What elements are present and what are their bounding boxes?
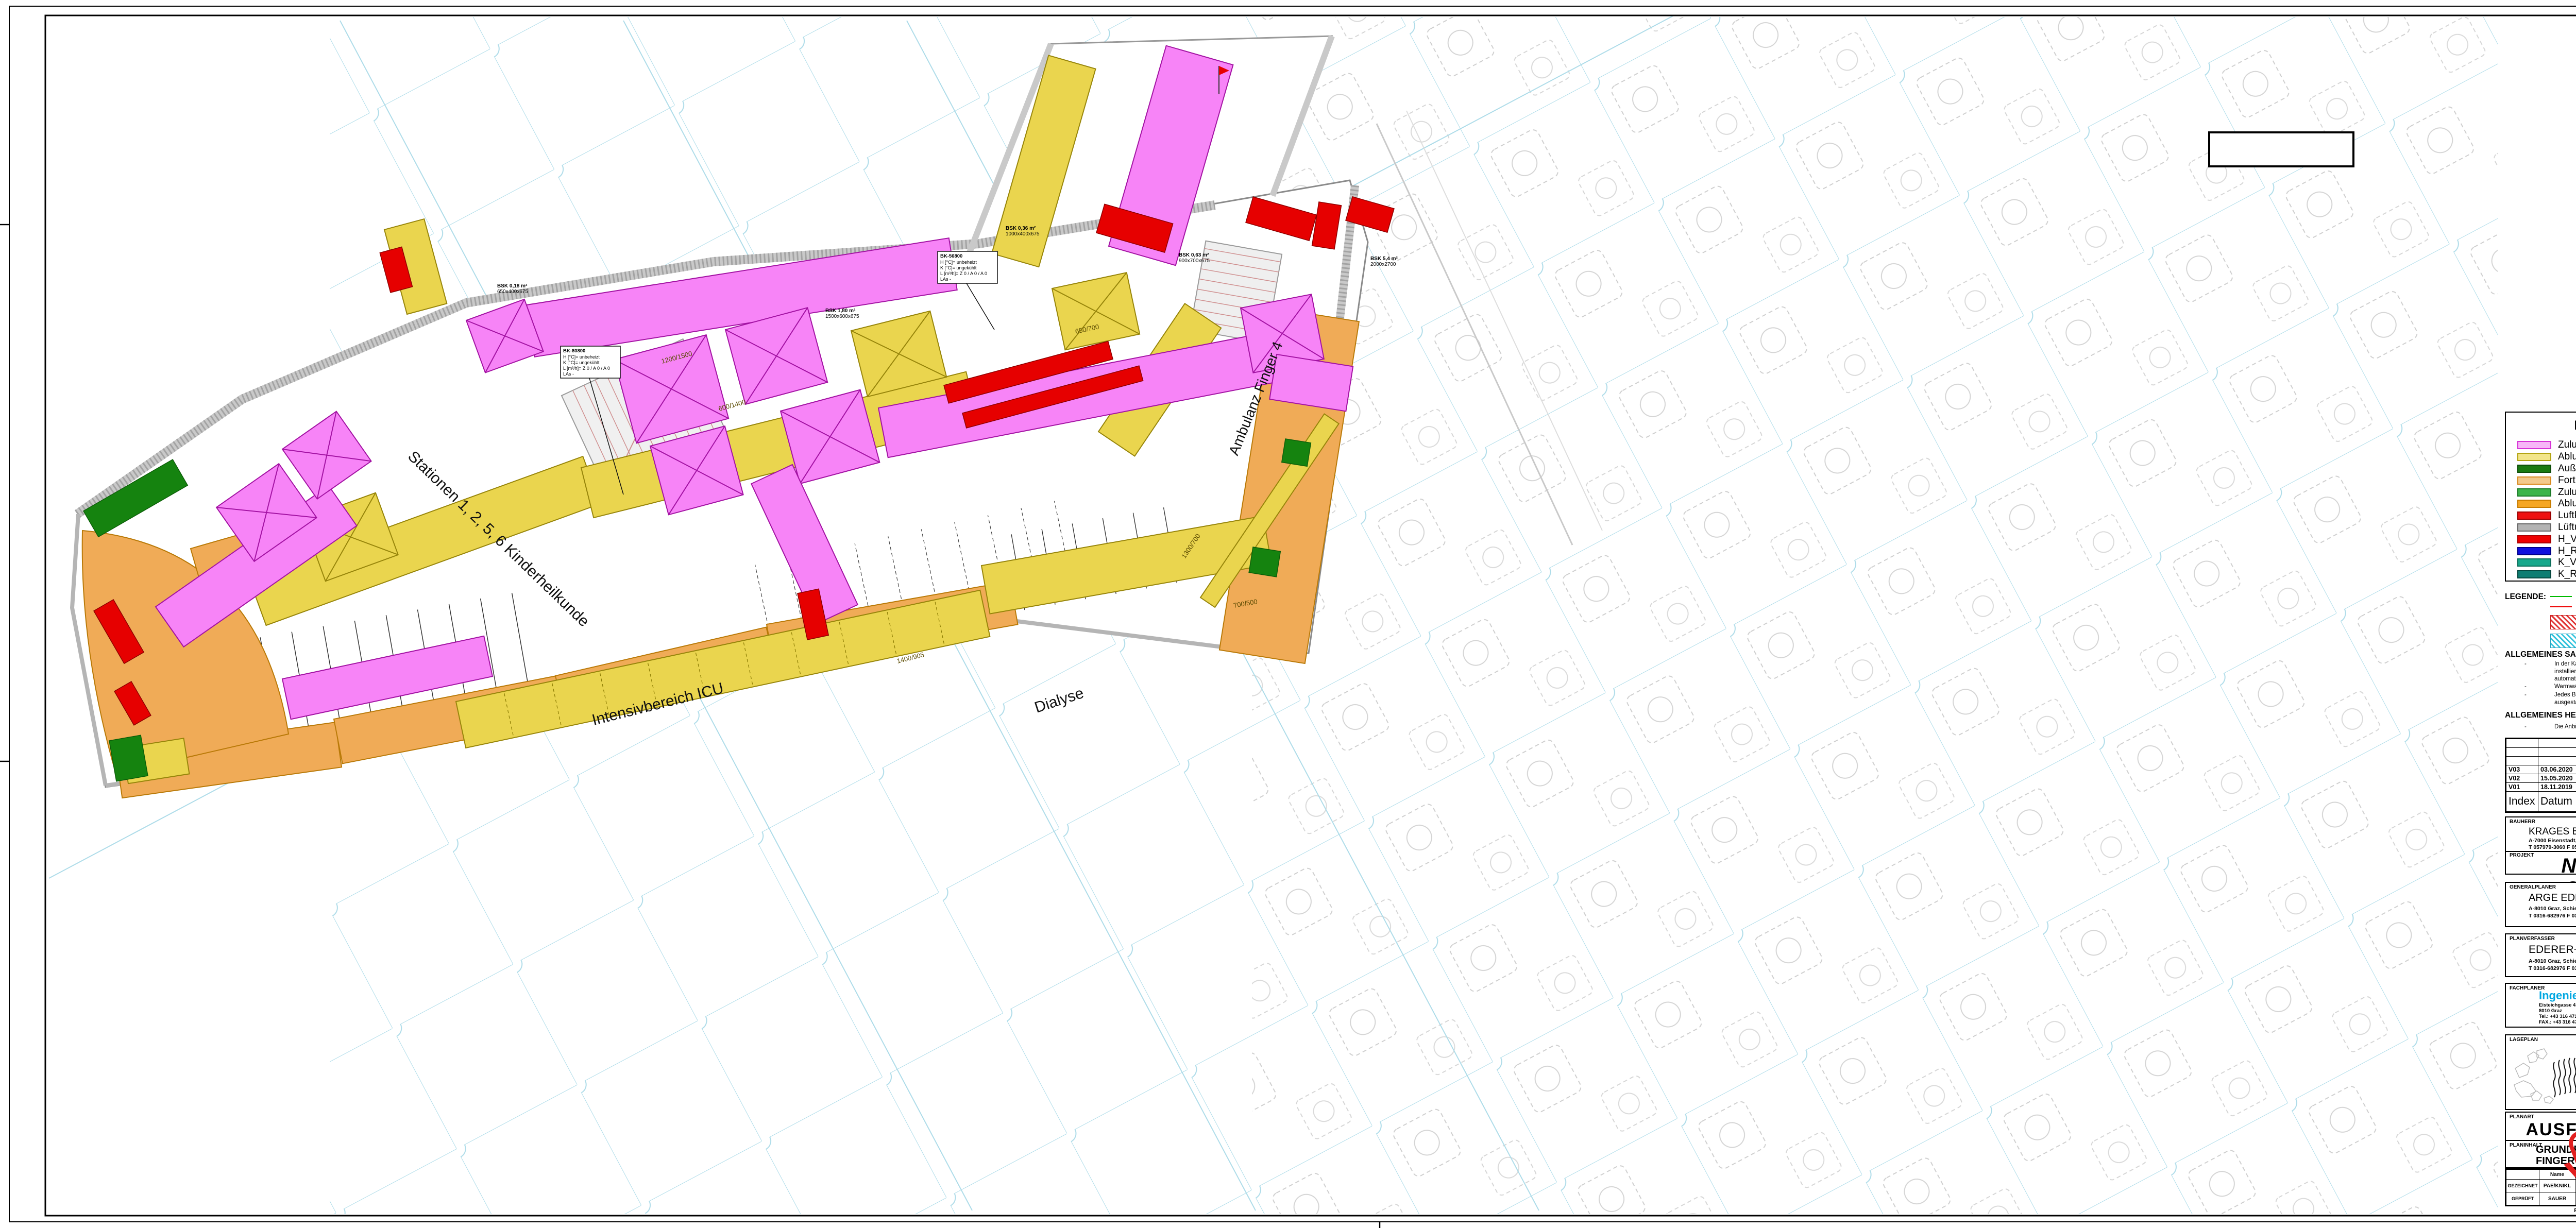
svg-text:1000x400x675: 1000x400x675 xyxy=(1006,231,1040,237)
legend-item: Fortluft xyxy=(2517,474,2576,486)
legend-item: K_Vorlauf xyxy=(2517,557,2576,569)
legend-item: Zuluft DBA xyxy=(2517,486,2576,498)
generalplaner-address: A-8010 Graz, Schießstallgasse 50 xyxy=(2529,906,2576,912)
legend-item: Luftkanalzubehör xyxy=(2517,510,2576,522)
note-rohrtrasse-warm: Rohrtrasse warm, bestehend aus Heizung-,… xyxy=(2550,604,2576,610)
svg-text:BSK 0,36 m²: BSK 0,36 m² xyxy=(1006,226,1036,231)
color-swatch xyxy=(2517,453,2551,461)
bauherr-name: KRAGES Burgenländische Krankenanstalten-… xyxy=(2529,826,2576,838)
fachplaner-addr2: 8010 Graz xyxy=(2539,1008,2562,1014)
color-swatch xyxy=(2517,523,2551,532)
color-swatch xyxy=(2517,570,2551,578)
column-grid-field xyxy=(1252,17,2498,1214)
svg-text:1500x600x675: 1500x600x675 xyxy=(825,314,859,319)
bauherr-projekt-box: BAUHERR KRAGES Burgenländische Krankenan… xyxy=(2505,816,2576,875)
fachplaner-box: FACHPLANER Ingenieurbüro Lang GmbH Eiste… xyxy=(2505,983,2576,1028)
generalplaner-box: GENERALPLANER ARGE EDERER+HAGHIRIAN, GEN… xyxy=(2505,882,2576,927)
svg-text:BK-56800: BK-56800 xyxy=(940,253,962,259)
lageplan-label: LAGEPLAN xyxy=(2510,1037,2538,1043)
legende-notes-title: LEGENDE: xyxy=(2505,592,2546,602)
color-swatch xyxy=(2517,441,2551,449)
legend-item: H_Rücklauf xyxy=(2517,545,2576,557)
generalplaner-name: ARGE EDERER+HAGHIRIAN, GENERALPLAN GMBH xyxy=(2529,892,2576,904)
planart-value: AUSFÜHRUNGSPLAN xyxy=(2506,1120,2576,1140)
legend-item: H_Vorlauf xyxy=(2517,533,2576,545)
svg-text:L [m³/h]= Z 0 / A 0 / A 0: L [m³/h]= Z 0 / A 0 / A 0 xyxy=(940,271,987,276)
heizung-title: ALLGEMEINES HEIZUNG xyxy=(2505,711,2576,720)
revision-row: V0215.05.2020KNIKLProjektanpassungen xyxy=(2506,774,2576,783)
signature-row-gezeichnet: GEZEICHNET PAE/KNIKL 13.09.2019 1879x891… xyxy=(2506,1180,2576,1192)
svg-text:L [m³/h]= Z 0 / A 0 / A 0: L [m³/h]= Z 0 / A 0 / A 0 xyxy=(563,366,610,371)
red-line-sample xyxy=(2550,606,2572,607)
svg-text:BSK 5,4 m²: BSK 5,4 m² xyxy=(1370,256,1398,262)
revision-row: V0118.11.2019KOGIEDiverse Änderungen xyxy=(2506,783,2576,792)
revision-row: V0303.06.2020KNIKLDiverse Änderungen und… xyxy=(2506,765,2576,774)
color-swatch xyxy=(2517,476,2551,485)
legend-item: K_Rücklauf xyxy=(2517,569,2576,581)
planart-box: PLANART AUSFÜHRUNGSPLAN xyxy=(2505,1112,2576,1141)
plan-code: Plan-Code/Nr: K5N_HKL_AF_GR_2U_FINGER5NO… xyxy=(2505,1207,2576,1214)
sanitaer-title: ALLGEMEINES SANITÄR xyxy=(2505,650,2576,659)
color-swatch xyxy=(2517,511,2551,520)
planart-label: PLANART xyxy=(2510,1114,2534,1120)
legend-item: Lüftungsgeräte xyxy=(2517,522,2576,534)
hatch-sample-fba xyxy=(2550,634,2576,648)
bauherr-label: BAUHERR xyxy=(2510,819,2535,825)
floor-plan-drawing: BK-80800 H [°C]= unbeheizt K [°C]= ungek… xyxy=(0,0,2576,1228)
hatch-sample-fbh xyxy=(2550,615,2576,629)
svg-text:LAs -: LAs - xyxy=(940,277,951,282)
fachplaner-fax: FAX.: +43 316 471537-9 xyxy=(2539,1019,2576,1025)
lageplan-bauteil-box: LAGEPLAN BAUTEIL xyxy=(2505,1034,2576,1110)
svg-text:BSK 0,18 m²: BSK 0,18 m² xyxy=(497,283,528,289)
planverfasser-name: EDERER+HAGHIRIAN xyxy=(2529,944,2576,956)
fachplaner-addr1: Eisteichgasse 41 xyxy=(2539,1002,2576,1008)
signature-table: Name Datum Plangröße Sparte PHASE INDEX … xyxy=(2505,1168,2576,1206)
stamp-field-empty xyxy=(2209,132,2353,166)
svg-text:BK-80800: BK-80800 xyxy=(563,348,585,354)
planverfasser-contact: T 0316-682976 F 0316-823951 E office@gpk… xyxy=(2529,965,2576,971)
lageplan-map xyxy=(2510,1045,2576,1107)
svg-text:K [°C]= ungekühlt: K [°C]= ungekühlt xyxy=(940,265,977,270)
planverfasser-address: A-8010 Graz, Schießstallgasse 50 xyxy=(2529,958,2576,964)
drawing-sheet: BK-80800 H [°C]= unbeheizt K [°C]= ungek… xyxy=(0,0,2576,1228)
color-swatch xyxy=(2517,465,2551,473)
heizung-note: Die Anbindung der Heizkörper erfolgt vom… xyxy=(2554,723,2576,731)
revision-row-empty xyxy=(2506,739,2576,748)
green-line-sample xyxy=(2550,596,2572,597)
revision-row-empty xyxy=(2506,748,2576,757)
svg-text:BSK 0,63 m²: BSK 0,63 m² xyxy=(1179,252,1209,258)
color-swatch xyxy=(2517,488,2551,497)
revision-table: V0303.06.2020KNIKLDiverse Änderungen und… xyxy=(2505,738,2576,813)
bauherr-contact: T 057979-3060 F 057979-5306 E direktion@… xyxy=(2529,844,2576,850)
svg-text:H [°C]= unbeheizt: H [°C]= unbeheizt xyxy=(940,260,977,265)
divider xyxy=(2506,851,2576,852)
svg-text:BSK 1,80 m²: BSK 1,80 m² xyxy=(825,308,856,314)
svg-text:H [°C]= unbeheizt: H [°C]= unbeheizt xyxy=(563,354,600,360)
color-swatch xyxy=(2517,547,2551,555)
legend-title: LEGENDE-HKLS xyxy=(2506,418,2576,433)
bauherr-address: A-7000 Eisenstadt, Josef Hyrtl Platz 4 xyxy=(2529,838,2576,844)
generalplaner-label: GENERALPLANER xyxy=(2510,884,2556,890)
legend-item: Abluft DBA xyxy=(2517,498,2576,510)
signature-row-geprueft: GEPRÜFT SAUER 13.09.2019 xyxy=(2506,1192,2576,1205)
legend-item: Abluft xyxy=(2517,451,2576,463)
svg-text:K [°C]= ungekühlt: K [°C]= ungekühlt xyxy=(563,360,600,365)
svg-text:900x700x675: 900x700x675 xyxy=(1179,258,1210,264)
sanitaer-note: Warmwasserleitungen werden bis zur Entna… xyxy=(2554,683,2576,691)
revision-header-row: IndexDatumGezeichn.Änderung xyxy=(2506,792,2576,812)
color-swatch xyxy=(2517,558,2551,567)
svg-text:2000x2700: 2000x2700 xyxy=(1370,262,1396,267)
svg-text:LAs -: LAs - xyxy=(563,371,574,377)
notes-area: LEGENDE: Rohrtrasse kalt, bestehend aus … xyxy=(2505,590,2576,736)
sanitaer-note: In der Kaltwasserleitung ist am Ende der… xyxy=(2554,660,2576,683)
legend-item: Zuluft xyxy=(2517,439,2576,451)
legend-column-left: Zuluft Abluft Außenluft Fortluft Zuluft … xyxy=(2517,439,2576,581)
revision-row-empty xyxy=(2506,757,2576,765)
planverfasser-box: PLANVERFASSER EDERER+HAGHIRIAN A-8010 Gr… xyxy=(2505,933,2576,977)
fachplaner-tel: Tel.: +43 316 471537 xyxy=(2539,1014,2576,1019)
svg-text:650x400x675: 650x400x675 xyxy=(497,289,528,295)
legend-item: Außenluft xyxy=(2517,463,2576,475)
fachplaner-name: Ingenieurbüro Lang GmbH xyxy=(2539,989,2576,1002)
color-swatch xyxy=(2517,500,2551,508)
planverfasser-label: PLANVERFASSER xyxy=(2510,936,2555,942)
legend-hkls-box: LEGENDE-HKLS Zuluft Abluft Außenluft For… xyxy=(2505,412,2576,582)
note-rohrtrasse-kalt: Rohrtrasse kalt, bestehend aus Trink- un… xyxy=(2550,593,2576,600)
color-swatch xyxy=(2517,535,2551,543)
generalplaner-contact: T 0316-682976 F 0316-823951 E office@gpk… xyxy=(2529,913,2576,919)
sanitaer-note: Jedes Bad bzw. jeder Raum wird über Unte… xyxy=(2554,691,2576,706)
